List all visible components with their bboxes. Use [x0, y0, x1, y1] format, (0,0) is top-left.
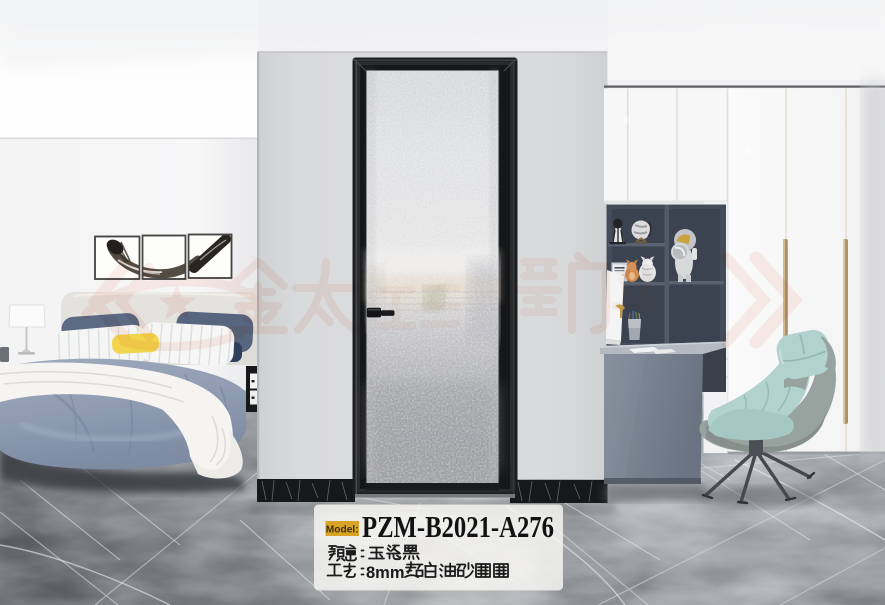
svg-text:8mm: 8mm	[366, 564, 405, 582]
svg-text:Model:: Model:	[326, 524, 359, 535]
svg-text:PZM-B2021-A276: PZM-B2021-A276	[362, 509, 554, 544]
